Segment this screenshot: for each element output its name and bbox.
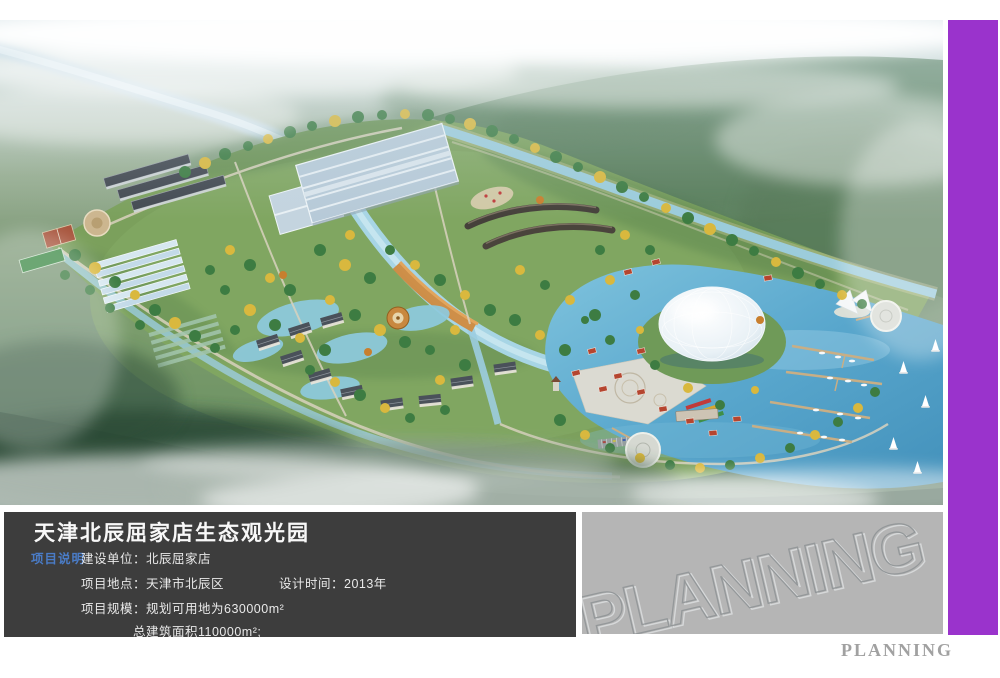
design-time: 设计时间：2013年 (279, 573, 387, 592)
masterplan-rendering (0, 20, 943, 505)
presentation-board: 天津北辰屈家店生态观光园 项目说明 建设单位：北辰屈家店 项目地点：天津市北辰区… (0, 0, 1000, 678)
total-floor-area: 总建筑面积110000m²; (133, 621, 261, 640)
watermark-text: PLANNING (582, 512, 930, 634)
project-info-panel: 天津北辰屈家店生态观光园 项目说明 建设单位：北辰屈家店 项目地点：天津市北辰区… (4, 512, 576, 637)
construction-unit: 建设单位：北辰屈家店 (81, 548, 211, 567)
watermark-panel: PLANNING PLANNING (582, 512, 943, 634)
round-pavilion (387, 307, 409, 329)
project-location: 项目地点：天津市北辰区 (81, 573, 224, 592)
project-title: 天津北辰屈家店生态观光园 (34, 517, 310, 547)
section-label: 项目说明 (31, 548, 85, 567)
project-scale: 项目规模：规划可用地为630000m² (81, 598, 284, 617)
accent-stripe (948, 20, 998, 635)
footer-brand: PLANNING (841, 640, 953, 661)
